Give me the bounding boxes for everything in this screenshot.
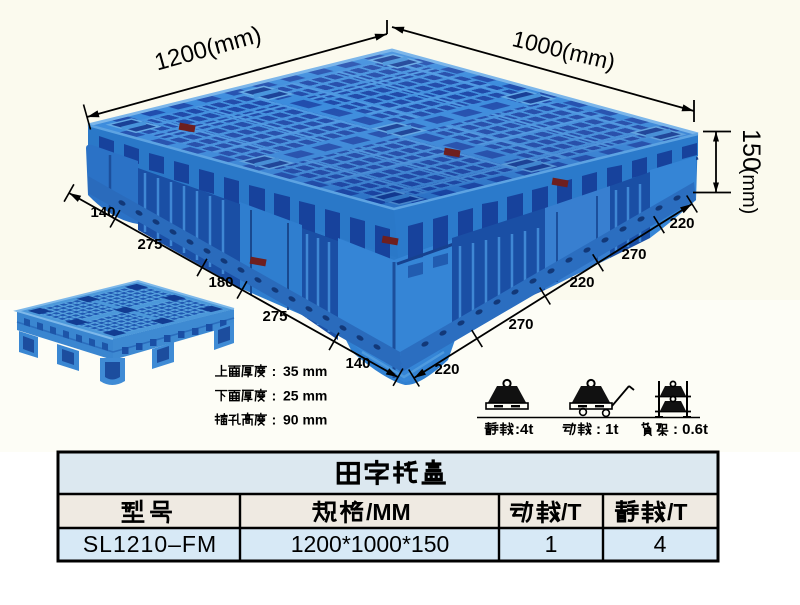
svg-text:150: 150 bbox=[737, 129, 765, 171]
svg-text:(mm): (mm) bbox=[738, 168, 760, 215]
svg-text::: : bbox=[272, 388, 277, 404]
svg-text:270: 270 bbox=[508, 316, 533, 333]
svg-text:220: 220 bbox=[569, 274, 594, 291]
svg-text:220: 220 bbox=[669, 215, 694, 232]
svg-text::4t: :4t bbox=[515, 421, 533, 438]
svg-text:25 mm: 25 mm bbox=[283, 388, 327, 404]
svg-text:: 1t: : 1t bbox=[596, 421, 619, 438]
svg-text::: : bbox=[272, 363, 277, 379]
svg-text:4: 4 bbox=[654, 531, 667, 557]
svg-text:/T: /T bbox=[667, 499, 687, 525]
svg-text:270: 270 bbox=[621, 246, 646, 263]
svg-text:: 0.6t: : 0.6t bbox=[673, 421, 708, 438]
svg-text:140: 140 bbox=[90, 204, 115, 221]
svg-text:/MM: /MM bbox=[366, 499, 411, 525]
svg-text:35 mm: 35 mm bbox=[283, 363, 327, 379]
svg-text:220: 220 bbox=[434, 361, 459, 378]
svg-text:275: 275 bbox=[137, 236, 162, 253]
svg-text:90 mm: 90 mm bbox=[283, 412, 327, 428]
svg-text:140: 140 bbox=[345, 355, 370, 372]
svg-text:180: 180 bbox=[208, 274, 233, 291]
svg-text:275: 275 bbox=[262, 308, 287, 325]
svg-text:1: 1 bbox=[545, 531, 558, 557]
svg-text:SL1210–FM: SL1210–FM bbox=[83, 531, 217, 557]
svg-text:/T: /T bbox=[561, 499, 581, 525]
svg-text:1200*1000*150: 1200*1000*150 bbox=[291, 531, 450, 557]
svg-text::: : bbox=[272, 412, 277, 428]
